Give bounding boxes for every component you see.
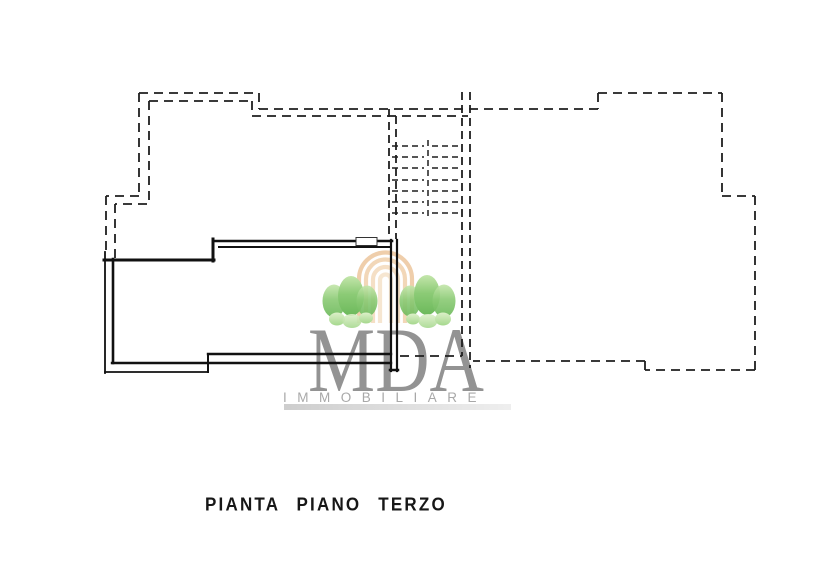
window-symbol xyxy=(356,238,377,246)
apartment-unit-walls-solid xyxy=(104,239,398,373)
stairwell-walls-dashed xyxy=(389,92,470,368)
building-outline-dashed xyxy=(106,93,755,370)
floor-plan-drawing xyxy=(0,0,814,572)
plan-title: PIANTA PIANO TERZO xyxy=(205,493,447,517)
floor-plan-page: MDA IMMOBILIARE xyxy=(0,0,814,572)
staircase-treads xyxy=(392,140,459,216)
